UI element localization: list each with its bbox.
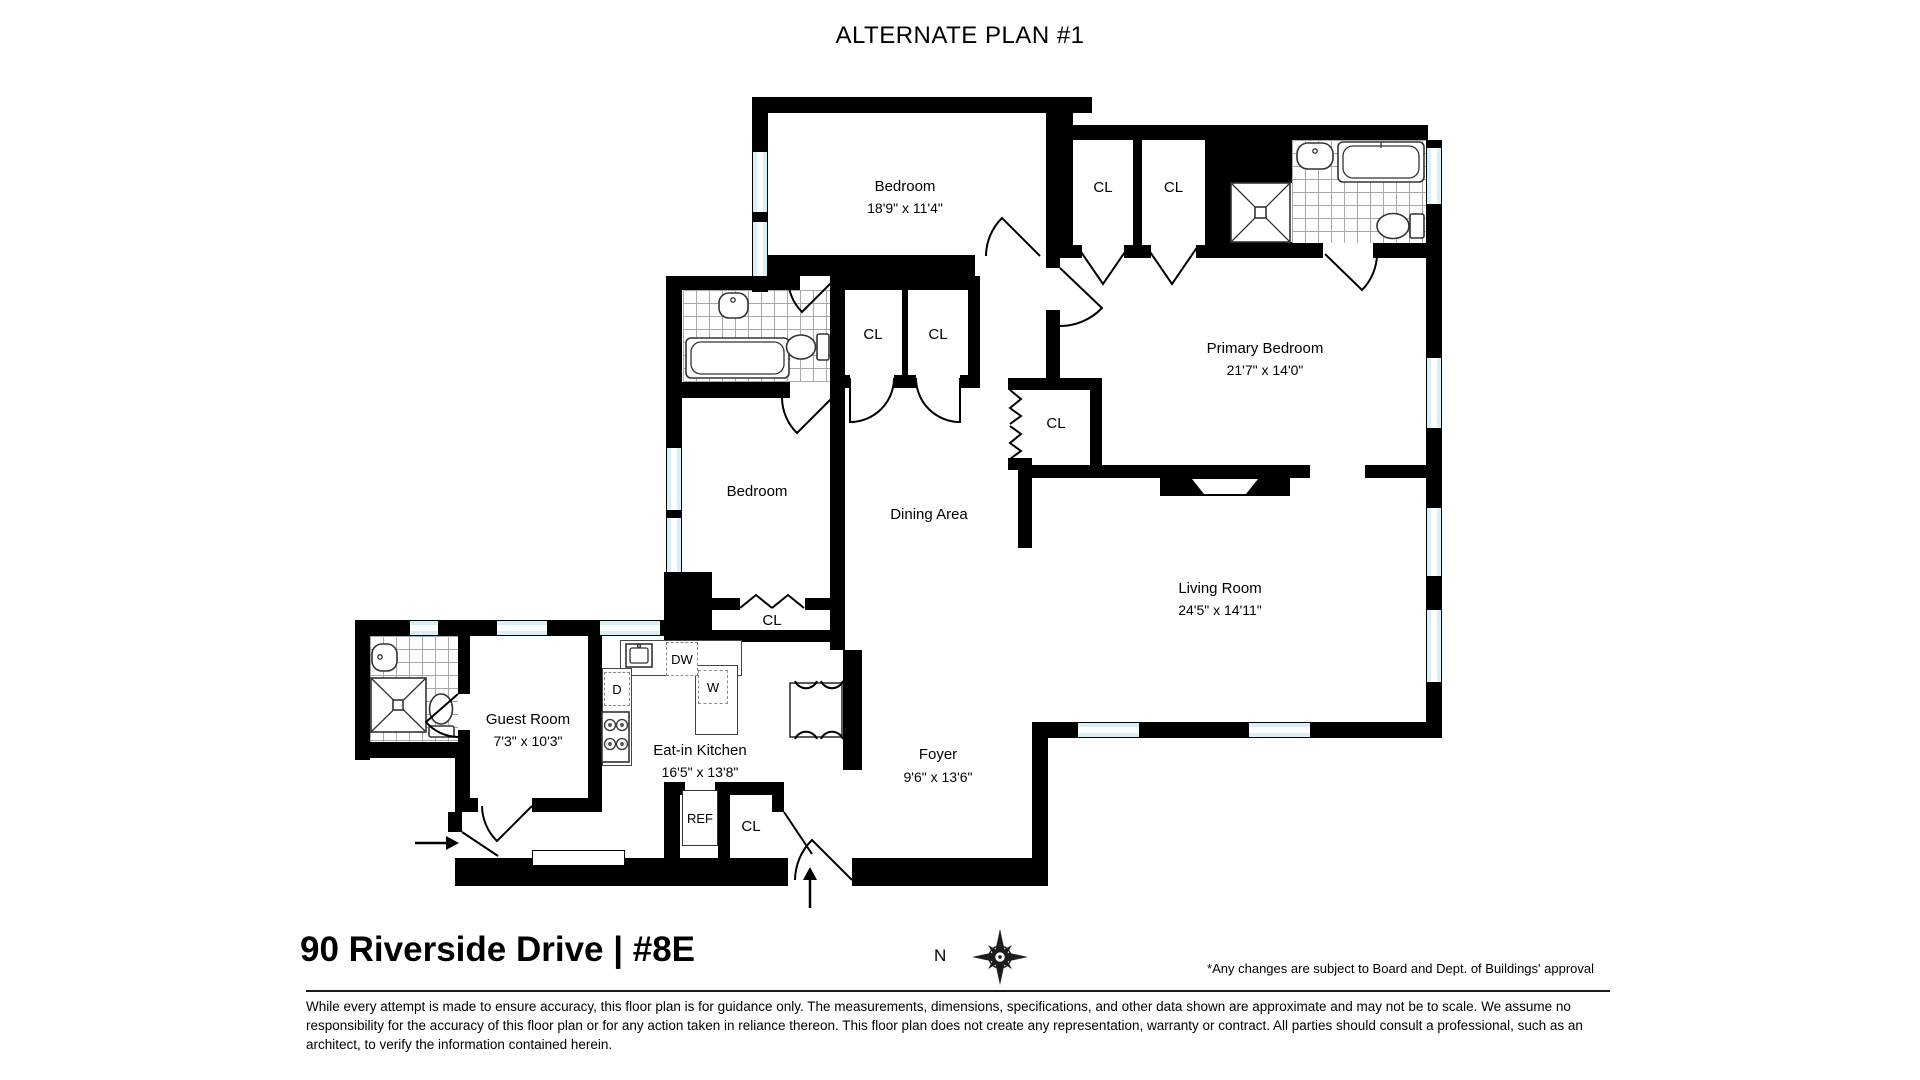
compass-icon	[972, 929, 1028, 985]
wall	[800, 255, 836, 276]
window	[1078, 722, 1139, 738]
door-arc	[916, 378, 960, 422]
entry-arrow-icon	[415, 836, 459, 850]
window	[497, 620, 547, 636]
plan-title: ALTERNATE PLAN #1	[660, 22, 1260, 50]
bathroom-floor	[1292, 140, 1426, 243]
wall	[843, 650, 862, 770]
refrigerator: REF	[682, 790, 718, 846]
wall	[715, 782, 784, 795]
room-dims-guest-room: 7'3" x 10'3"	[466, 733, 590, 750]
door-leaf	[784, 812, 812, 854]
wall	[1196, 245, 1205, 258]
wall	[1073, 245, 1082, 258]
address-title: 90 Riverside Drive | #8E	[300, 930, 695, 970]
radiator	[532, 850, 625, 866]
closet-label: CL	[726, 818, 776, 835]
wall	[1231, 242, 1292, 258]
bathroom-floor	[683, 290, 830, 382]
room-label-kitchen: Eat-in Kitchen	[608, 742, 792, 761]
footer-divider	[306, 990, 1610, 992]
wall	[1032, 465, 1310, 478]
closet-label: CL	[1073, 179, 1133, 196]
wall	[668, 382, 790, 398]
wall	[1292, 243, 1323, 258]
room-dims-kitchen: 16'5" x 13'8"	[608, 764, 792, 781]
floor-plan-page: ALTERNATE PLAN #1	[0, 0, 1920, 1080]
wall	[448, 812, 462, 832]
wall	[1373, 243, 1426, 258]
room-label-living-room: Living Room	[1100, 580, 1340, 599]
wall	[1365, 465, 1442, 478]
wall	[458, 620, 470, 694]
washer-label: W	[707, 680, 719, 695]
room-label-foyer: Foyer	[876, 746, 1000, 765]
room-label-primary-bedroom: Primary Bedroom	[1135, 340, 1395, 359]
wall	[455, 798, 478, 812]
dining-table-icon	[790, 681, 843, 739]
approval-note: *Any changes are subject to Board and De…	[1100, 961, 1594, 976]
wall	[532, 798, 592, 812]
dryer-label: D	[612, 682, 621, 697]
wall	[1218, 140, 1292, 183]
closet-label: CL	[908, 326, 968, 343]
window	[752, 152, 768, 212]
wall	[664, 795, 680, 858]
wall	[1090, 390, 1102, 470]
dishwasher: DW	[666, 642, 698, 676]
door-arc	[1060, 268, 1102, 326]
closet-label: CL	[844, 326, 902, 343]
dryer: D	[604, 672, 630, 706]
room-dims-living-room: 24'5" x 14'11"	[1100, 602, 1340, 619]
dishwasher-label: DW	[671, 652, 693, 667]
window	[1426, 148, 1442, 204]
wall	[752, 97, 1092, 113]
bifold-door-icon	[1010, 390, 1021, 459]
door-arc	[1325, 254, 1377, 290]
room-label-dining-area: Dining Area	[844, 506, 1014, 525]
closet-label: CL	[1024, 415, 1088, 432]
north-label: N	[934, 946, 946, 966]
door-arc	[986, 218, 1040, 256]
room-dims-primary-bedroom: 21'7" x 14'0"	[1135, 362, 1395, 379]
window	[1426, 508, 1442, 576]
door-arc	[782, 398, 832, 433]
closet-door-icon	[1146, 246, 1198, 284]
wall	[588, 636, 602, 812]
wall	[355, 620, 370, 760]
door-arc	[482, 806, 532, 841]
wall	[1073, 125, 1428, 140]
shower-icon	[1231, 183, 1290, 242]
window	[1426, 610, 1442, 682]
door-leaf	[462, 832, 498, 856]
room-label-bedroom-mid: Bedroom	[672, 483, 842, 502]
wall	[1018, 458, 1032, 548]
wall	[894, 375, 916, 388]
window	[1426, 358, 1442, 428]
wall	[1218, 183, 1231, 258]
closet-label: CL	[742, 612, 802, 629]
wall	[1205, 140, 1218, 258]
wall	[1008, 378, 1020, 390]
disclaimer-text: While every attempt is made to ensure ac…	[306, 998, 1610, 1055]
wall	[1124, 245, 1151, 258]
door-arc	[850, 378, 894, 422]
room-label-bedroom-top: Bedroom	[805, 178, 1005, 197]
wall	[1020, 378, 1102, 390]
entry-arrow-icon	[803, 867, 817, 908]
bathroom-floor	[370, 636, 458, 742]
closet-door-icon	[1077, 246, 1129, 284]
wall	[960, 375, 968, 388]
room-dims-bedroom-top: 18'9" x 11'4"	[805, 200, 1005, 217]
wall	[772, 795, 784, 812]
wall	[1032, 722, 1048, 886]
wall	[355, 742, 470, 758]
room-dims-foyer: 9'6" x 13'6"	[866, 769, 1010, 786]
wall	[968, 276, 980, 388]
wall	[852, 858, 1048, 886]
wall	[805, 598, 830, 610]
wall	[1046, 113, 1073, 258]
window	[410, 620, 438, 636]
wall	[1133, 140, 1142, 258]
wall	[836, 255, 975, 290]
window	[1249, 722, 1310, 738]
closet-label: CL	[1142, 179, 1205, 196]
wall	[842, 375, 850, 388]
window	[752, 222, 768, 276]
window	[666, 518, 682, 572]
refrigerator-label: REF	[687, 811, 713, 826]
door-arc	[795, 840, 852, 880]
washer: W	[698, 670, 728, 704]
wall	[830, 395, 845, 650]
wall	[1046, 258, 1060, 268]
fireplace-wall	[1160, 478, 1290, 496]
room-label-guest-room: Guest Room	[466, 711, 590, 730]
wall	[768, 255, 800, 290]
closet-double-door-icon	[740, 595, 804, 608]
wall	[1046, 310, 1060, 390]
window	[600, 620, 660, 636]
